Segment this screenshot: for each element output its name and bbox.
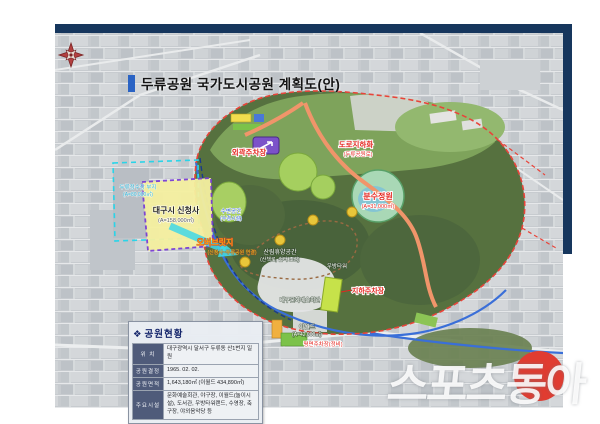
title-accent-bar xyxy=(128,75,135,92)
page: 대구시 신청사 (A=158,000㎡) 두류정수장 부지 (A=80,000㎡… xyxy=(0,0,600,424)
label-arts-center: 대구문화예술회관 xyxy=(280,296,320,304)
status-row-label: 공원결정 xyxy=(133,365,163,377)
watermark-logo: 스포츠동아 xyxy=(385,348,589,413)
label-forest-rest-sub: (산책로, 쉼터 조성) xyxy=(260,256,300,263)
label-eworld-sub: (A=42,000㎡) xyxy=(292,331,322,338)
page-title: 두류공원 국가도시공원 계획도(안) xyxy=(141,73,340,93)
status-row-label: 위 치 xyxy=(133,344,163,364)
label-woobang-tower: 우방타워 xyxy=(327,262,347,270)
diamond-icon: ❖ xyxy=(133,329,143,340)
label-outer-parking: 외곽주차장 xyxy=(232,147,267,157)
status-row-value: 문화예술회관, 야구장, 이월드(놀이시설), 도서관, 우방타워랜드, 수영장… xyxy=(164,391,258,419)
status-row-value: 1,643,180㎡ (이월드 434,890㎡) xyxy=(164,378,258,390)
label-waterworks-site: 두류정수장 부지 xyxy=(120,183,157,191)
status-row-label: 공원면적 xyxy=(133,378,163,390)
status-row-label: 주요시설 xyxy=(133,391,163,419)
label-eworld: 이월드 xyxy=(299,323,316,331)
label-flat-parking: 평면주차장(정비) xyxy=(303,340,342,348)
label-new-cityhall-sub: (A=158,000㎡) xyxy=(158,216,194,224)
label-fountain-garden-sub: (A=31,000㎡) xyxy=(362,202,395,210)
map-title-block: 두류공원 국가도시공원 계획도(안) xyxy=(128,73,340,93)
label-overbridge-sub: (신청사~두류공원 연결) xyxy=(207,249,256,256)
park-status-title: ❖공원현황 xyxy=(133,326,259,340)
label-forest-rest: 산림휴양공간 xyxy=(263,248,297,256)
park-status-table: 위 치 대구광역시 달서구 두류동 산1번지 일원 공원결정 1965. 02.… xyxy=(132,343,259,420)
label-overbridge: 오버브릿지 xyxy=(197,237,234,247)
park-status-title-text: 공원현황 xyxy=(145,329,184,340)
label-waterworks-site-sub: (A=80,000㎡) xyxy=(123,191,153,198)
park-status-box: ❖공원현황 위 치 대구광역시 달서구 두류동 산1번지 일원 공원결정 196… xyxy=(128,321,263,424)
label-road-underground-sub: (두류공원로) xyxy=(344,150,373,158)
label-waterside-sub: (수경시설) xyxy=(220,215,242,222)
right-frame-bar xyxy=(563,24,572,254)
label-underground-parking: 지하주차장 xyxy=(352,286,385,295)
label-fountain-garden: 분수정원 xyxy=(363,191,392,201)
top-frame-bar xyxy=(55,24,567,33)
label-new-cityhall: 대구시 신청사 xyxy=(153,205,200,215)
label-road-underground: 도로지하화 xyxy=(339,139,374,149)
status-row-value: 1965. 02. 02. xyxy=(164,365,258,377)
label-waterside: 수변공간 xyxy=(221,207,241,215)
status-row-value: 대구광역시 달서구 두류동 산1번지 일원 xyxy=(164,344,258,364)
